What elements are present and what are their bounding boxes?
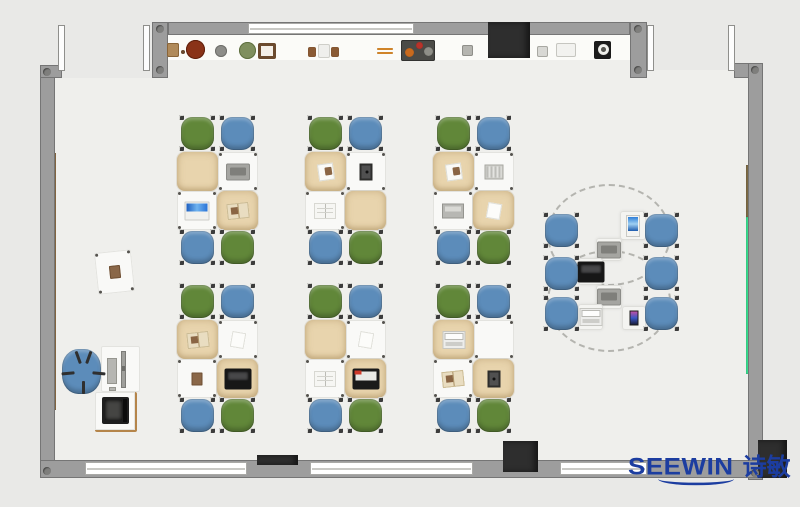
chair-foot: [475, 229, 480, 234]
pod-item-gray-laptop: [597, 241, 621, 258]
student-chair: [349, 117, 382, 150]
desk-corner-dot: [213, 360, 216, 363]
chair-foot: [250, 115, 255, 120]
chair-foot: [378, 283, 383, 288]
chair-foot: [347, 146, 352, 151]
student-chair: [221, 399, 254, 432]
desk-corner-dot: [178, 360, 181, 363]
desk-corner-dot: [178, 192, 181, 195]
chair-foot: [338, 428, 343, 433]
chair-foot: [219, 146, 224, 151]
chair-foot: [506, 115, 511, 120]
desk-corner-dot: [254, 187, 257, 190]
desk-corner-dot: [347, 321, 350, 324]
chair-foot: [435, 146, 440, 151]
desk-cluster: [433, 283, 514, 432]
desk-corner-dot: [475, 153, 478, 156]
chair-foot: [250, 428, 255, 433]
student-desk: [474, 320, 514, 359]
student-desk: [433, 152, 474, 191]
desk-corner-dot: [219, 321, 222, 324]
chair-foot: [506, 146, 511, 151]
office-chair-leg: [74, 350, 81, 363]
chair-foot: [543, 212, 548, 217]
chair-foot: [475, 115, 480, 120]
printer: [102, 397, 129, 424]
chair-foot: [347, 283, 352, 288]
chair-foot: [378, 146, 383, 151]
chair-foot: [574, 255, 579, 260]
chair-foot: [250, 229, 255, 234]
chair-foot: [674, 212, 679, 217]
chair-foot: [179, 397, 184, 402]
chair-foot: [574, 212, 579, 217]
chair-foot: [674, 255, 679, 260]
chair-foot: [250, 260, 255, 265]
chair-foot: [219, 229, 224, 234]
chair-foot: [219, 260, 224, 265]
chair-foot: [347, 115, 352, 120]
chair-foot: [347, 314, 352, 319]
desk-corner-dot: [127, 250, 130, 253]
chair-foot: [643, 286, 648, 291]
pod-chair: [545, 297, 578, 330]
chair-foot: [347, 397, 352, 402]
desk-corner-dot: [434, 360, 437, 363]
chair-foot: [179, 115, 184, 120]
desk-item-paper: [485, 201, 502, 219]
chair-foot: [307, 260, 312, 265]
desk-corner-dot: [341, 360, 344, 363]
chair-foot: [435, 229, 440, 234]
student-chair: [181, 117, 214, 150]
desk-item-black-laptop: [224, 368, 251, 389]
student-chair: [477, 285, 510, 318]
student-chair: [477, 117, 510, 150]
chair-foot: [347, 428, 352, 433]
chair-foot: [179, 283, 184, 288]
chair-foot: [210, 229, 215, 234]
chair-foot: [219, 115, 224, 120]
teacher-mouse: [109, 387, 116, 391]
student-chair: [181, 399, 214, 432]
logo-wordmark: SEEWIN: [628, 452, 734, 481]
pod-item-gray-laptop: [597, 289, 621, 306]
chair-foot: [307, 229, 312, 234]
chair-foot: [543, 286, 548, 291]
student-chair: [349, 285, 382, 318]
desk-item-open-book-tan: [226, 201, 250, 219]
chair-foot: [210, 115, 215, 120]
teacher-keyboard: [107, 358, 117, 384]
chair-foot: [643, 212, 648, 217]
desk-corner-dot: [347, 153, 350, 156]
student-desk: [345, 191, 386, 230]
desk-corner-dot: [219, 355, 222, 358]
pod-chair: [645, 297, 678, 330]
desk-cluster: [305, 115, 386, 264]
student-desk: [473, 191, 514, 230]
floorplan-image: SEEWIN 诗敏: [0, 0, 800, 507]
student-chair: [221, 231, 254, 264]
chair-foot: [179, 146, 184, 151]
chair-foot: [338, 397, 343, 402]
chair-foot: [475, 260, 480, 265]
chair-foot: [506, 260, 511, 265]
chair-foot: [674, 286, 679, 291]
chair-foot: [307, 314, 312, 319]
student-desk: [217, 191, 258, 230]
pod-table: [578, 258, 603, 285]
chair-foot: [338, 115, 343, 120]
student-chair: [477, 399, 510, 432]
desk-corner-dot: [475, 187, 478, 190]
chair-foot: [347, 229, 352, 234]
logo-swoosh-icon: [658, 472, 734, 485]
chair-foot: [435, 314, 440, 319]
pod-chair: [645, 214, 678, 247]
desk-corner-dot: [213, 192, 216, 195]
desk-corner-dot: [469, 192, 472, 195]
pod-item-phone: [630, 311, 639, 326]
desk-corner-dot: [382, 355, 385, 358]
student-chair: [221, 285, 254, 318]
desk-corner-dot: [131, 287, 134, 290]
desk-item-notebook: [485, 164, 504, 179]
desk-corner-dot: [347, 355, 350, 358]
chair-foot: [574, 295, 579, 300]
chair-foot: [643, 255, 648, 260]
desk-item-flat-laptop: [442, 203, 464, 218]
chair-foot: [347, 260, 352, 265]
student-desk: [218, 320, 258, 359]
seewin-logo: SEEWIN 诗敏: [628, 447, 791, 482]
desk-corner-dot: [254, 153, 257, 156]
student-chair: [309, 231, 342, 264]
chair-foot: [506, 229, 511, 234]
chair-foot: [475, 397, 480, 402]
desk-corner-dot: [219, 187, 222, 190]
student-desk: [473, 359, 514, 398]
chair-foot: [435, 115, 440, 120]
desk-corner-dot: [510, 153, 513, 156]
chair-foot: [378, 260, 383, 265]
pod-chair: [545, 214, 578, 247]
chair-foot: [307, 397, 312, 402]
student-desk: [433, 191, 473, 230]
chair-foot: [250, 146, 255, 151]
chair-foot: [250, 283, 255, 288]
chair-foot: [643, 295, 648, 300]
student-chair: [221, 117, 254, 150]
student-desk: [177, 191, 217, 230]
chair-foot: [475, 283, 480, 288]
teacher-side-desk: [94, 249, 135, 295]
student-desk: [346, 152, 386, 191]
student-chair: [437, 285, 470, 318]
desk-corner-dot: [306, 360, 309, 363]
chair-foot: [466, 397, 471, 402]
chair-foot: [210, 314, 215, 319]
chair-foot: [674, 326, 679, 331]
chair-foot: [179, 428, 184, 433]
student-desk: [177, 359, 217, 398]
chair-foot: [435, 283, 440, 288]
desk-corner-dot: [254, 321, 257, 324]
desk-corner-dot: [254, 355, 257, 358]
chair-foot: [466, 260, 471, 265]
chair-foot: [338, 283, 343, 288]
chair-foot: [543, 255, 548, 260]
desk-cluster: [305, 283, 386, 432]
chair-foot: [378, 314, 383, 319]
chair-foot: [219, 428, 224, 433]
chair-foot: [475, 314, 480, 319]
chair-foot: [338, 146, 343, 151]
student-desk: [474, 152, 514, 191]
student-desk: [346, 320, 386, 359]
chair-foot: [435, 260, 440, 265]
student-chair: [437, 231, 470, 264]
chair-foot: [307, 146, 312, 151]
chair-foot: [574, 243, 579, 248]
pod-item-tablet-blue: [626, 215, 640, 237]
chair-foot: [210, 283, 215, 288]
desk-cluster: [177, 283, 258, 432]
desk-item-paper: [358, 330, 375, 348]
student-chair: [437, 117, 470, 150]
student-desk: [217, 359, 258, 398]
student-desk: [345, 359, 386, 398]
chair-foot: [179, 229, 184, 234]
desk-corner-dot: [475, 321, 478, 324]
chair-foot: [307, 428, 312, 433]
chair-foot: [219, 283, 224, 288]
chair-foot: [643, 243, 648, 248]
chair-foot: [307, 283, 312, 288]
chair-foot: [506, 314, 511, 319]
student-desk: [433, 359, 473, 398]
office-chair-leg: [82, 381, 85, 394]
furniture-layer: [0, 0, 800, 507]
desk-corner-dot: [382, 153, 385, 156]
office-chair-leg: [61, 371, 74, 375]
chair-foot: [435, 397, 440, 402]
chair-foot: [378, 397, 383, 402]
student-chair: [477, 231, 510, 264]
desk-item-gray-laptop: [226, 163, 250, 180]
desk-corner-dot: [510, 187, 513, 190]
desk-corner-dot: [475, 355, 478, 358]
desk-corner-dot: [99, 290, 102, 293]
chair-foot: [506, 397, 511, 402]
chair-foot: [210, 428, 215, 433]
desk-item-blue-laptop: [185, 201, 210, 220]
chair-foot: [210, 397, 215, 402]
student-desk: [305, 359, 345, 398]
chair-foot: [674, 243, 679, 248]
chair-foot: [307, 115, 312, 120]
student-desk: [218, 152, 258, 191]
student-desk: [305, 191, 345, 230]
desk-item-paper: [230, 330, 247, 348]
chair-foot: [674, 295, 679, 300]
desk-item-brown-book: [192, 372, 203, 385]
teacher-office-chair: [62, 349, 101, 394]
desk-corner-dot: [510, 355, 513, 358]
desk-item-brown-book: [108, 265, 120, 279]
desk-corner-dot: [434, 192, 437, 195]
student-chair: [181, 285, 214, 318]
student-chair: [349, 231, 382, 264]
chair-foot: [179, 260, 184, 265]
desk-corner-dot: [382, 321, 385, 324]
chair-foot: [466, 146, 471, 151]
chair-foot: [219, 314, 224, 319]
chair-foot: [506, 283, 511, 288]
desk-item-black-laptop-red: [352, 368, 379, 389]
desk-cluster: [433, 115, 514, 264]
student-chair: [437, 399, 470, 432]
chair-foot: [338, 314, 343, 319]
desk-corner-dot: [510, 321, 513, 324]
student-desk: [305, 320, 346, 359]
chair-foot: [643, 326, 648, 331]
chair-foot: [543, 295, 548, 300]
desk-cluster: [177, 115, 258, 264]
pod-table: [578, 304, 603, 330]
desk-corner-dot: [306, 192, 309, 195]
teacher-monitor: [121, 351, 126, 388]
chair-foot: [210, 260, 215, 265]
chair-foot: [466, 428, 471, 433]
chair-foot: [475, 146, 480, 151]
chair-foot: [466, 229, 471, 234]
pod-item-white-laptop: [579, 308, 602, 326]
chair-foot: [179, 314, 184, 319]
chair-foot: [466, 283, 471, 288]
desk-item-open-book: [314, 371, 336, 387]
desk-corner-dot: [95, 254, 98, 257]
chair-foot: [338, 260, 343, 265]
chair-foot: [466, 314, 471, 319]
desk-item-open-book-tan: [441, 369, 465, 387]
student-chair: [181, 231, 214, 264]
student-desk: [433, 320, 474, 359]
student-chair: [309, 117, 342, 150]
student-chair: [349, 399, 382, 432]
chair-foot: [250, 397, 255, 402]
chair-foot: [338, 229, 343, 234]
chair-foot: [574, 286, 579, 291]
chair-foot: [219, 397, 224, 402]
desk-item-paper-brown: [444, 162, 462, 181]
student-chair: [309, 399, 342, 432]
chair-foot: [543, 326, 548, 331]
chair-foot: [250, 314, 255, 319]
chair-foot: [378, 229, 383, 234]
student-chair: [309, 285, 342, 318]
chair-foot: [210, 146, 215, 151]
desk-item-open-book-tan: [186, 330, 210, 348]
pod-chair: [545, 257, 578, 290]
desk-item-dark-tablet: [487, 370, 500, 387]
desk-corner-dot: [347, 187, 350, 190]
chair-foot: [475, 428, 480, 433]
pod-chair: [645, 257, 678, 290]
office-chair-leg: [92, 371, 105, 375]
office-chair-leg: [85, 350, 92, 363]
desk-corner-dot: [219, 153, 222, 156]
chair-foot: [506, 428, 511, 433]
desk-corner-dot: [341, 192, 344, 195]
chair-foot: [466, 115, 471, 120]
student-desk: [177, 320, 218, 359]
student-desk: [305, 152, 346, 191]
chair-foot: [574, 326, 579, 331]
desk-item-paper-brown: [316, 162, 334, 181]
desk-corner-dot: [382, 187, 385, 190]
chair-foot: [543, 243, 548, 248]
desk-item-dark-tablet: [360, 163, 373, 180]
logo-chinese-name: 诗敏: [743, 447, 791, 482]
chair-foot: [378, 115, 383, 120]
desk-corner-dot: [469, 360, 472, 363]
chair-foot: [435, 428, 440, 433]
pod-item-black-laptop: [577, 261, 604, 282]
desk-item-white-laptop: [442, 331, 465, 349]
chair-foot: [378, 428, 383, 433]
student-desk: [177, 152, 218, 191]
desk-item-open-book: [314, 203, 336, 219]
